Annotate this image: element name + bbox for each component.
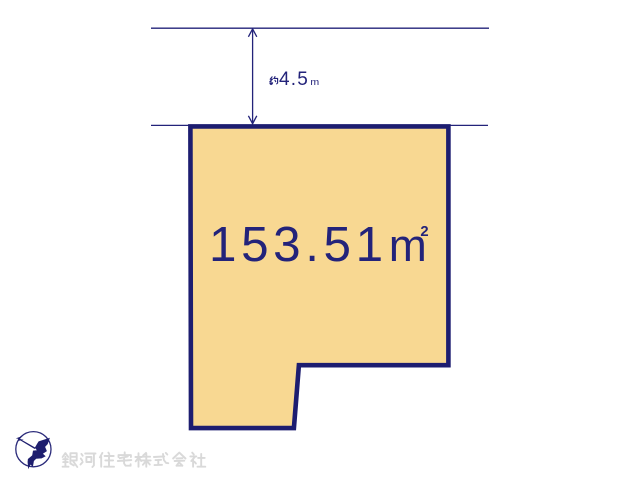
- svg-text:m: m: [310, 77, 319, 88]
- svg-text:4.5: 4.5: [279, 69, 309, 90]
- svg-text:2: 2: [420, 224, 428, 240]
- svg-text:153.51: 153.51: [209, 217, 388, 272]
